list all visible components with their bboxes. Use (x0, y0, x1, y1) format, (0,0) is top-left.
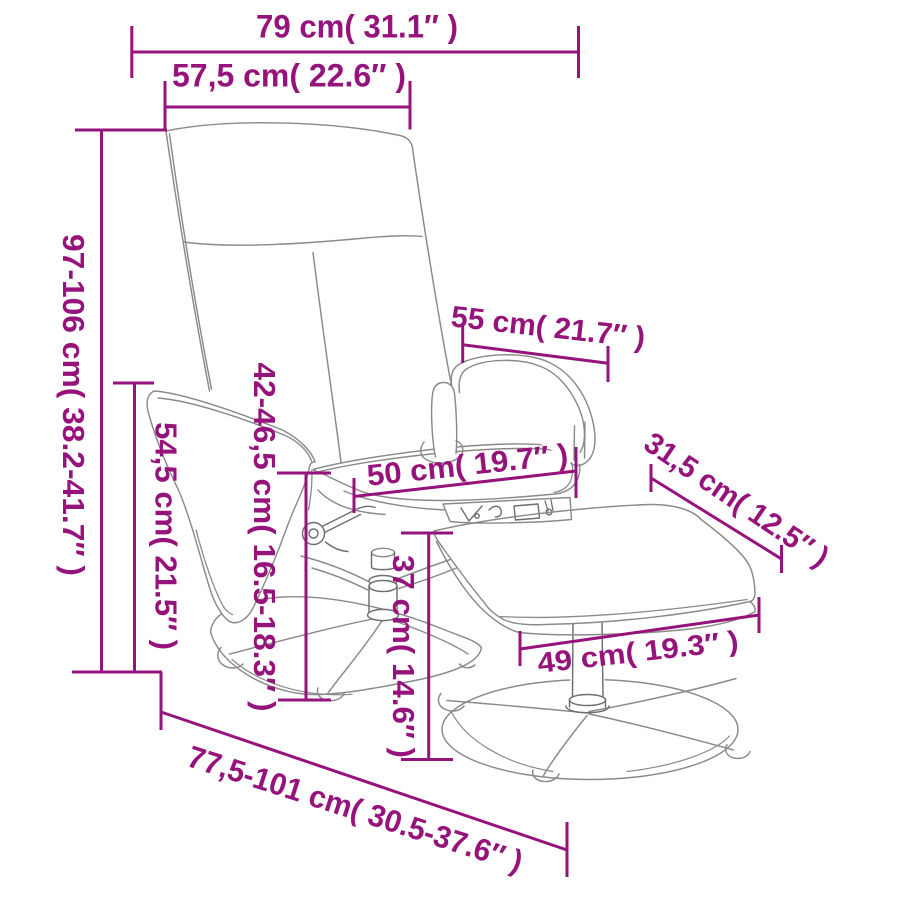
svg-text:54,5 cm( 21.5″ ): 54,5 cm( 21.5″ ) (149, 422, 184, 650)
svg-text:97-106 cm( 38.2-41.7″ ): 97-106 cm( 38.2-41.7″ ) (56, 234, 91, 576)
svg-text:57,5 cm( 22.6″ ): 57,5 cm( 22.6″ ) (172, 58, 406, 94)
svg-text:42-46,5 cm( 16.5-18.3″ ): 42-46,5 cm( 16.5-18.3″ ) (247, 363, 282, 712)
svg-text:37 cm( 14.6″ ): 37 cm( 14.6″ ) (386, 555, 421, 758)
svg-text:79 cm( 31.1″ ): 79 cm( 31.1″ ) (256, 9, 458, 45)
